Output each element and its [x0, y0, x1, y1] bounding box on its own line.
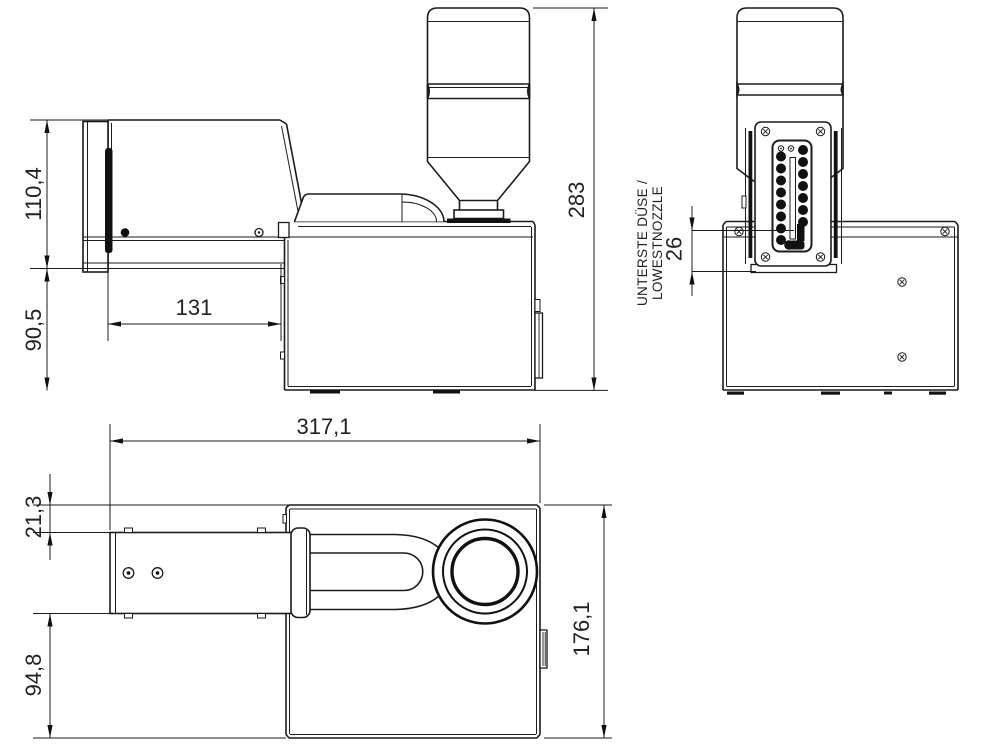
- body-right-tab: [535, 300, 540, 312]
- rail-screw-left: [735, 227, 743, 235]
- top-body-clip: [283, 515, 287, 524]
- dim-text-body-width: 176,1: [569, 601, 594, 656]
- technical-drawing-page: 110,4 90,5 131 283: [0, 0, 1000, 750]
- dim-text-total-length: 317,1: [296, 414, 351, 439]
- rail-clip: [279, 223, 290, 238]
- nozzle-field-screw-2: [788, 146, 793, 151]
- dim-text-lower-height: 90,5: [21, 309, 46, 352]
- side-view-structure: [30, 8, 543, 394]
- dim-text-total-height: 283: [564, 182, 589, 219]
- dim-text-body-depth: 94,8: [21, 654, 46, 697]
- arm-tab-top-2: [258, 528, 266, 533]
- top-arm: [110, 533, 293, 614]
- plate-screw-tr: [816, 127, 824, 135]
- channel-bar-right: [834, 131, 838, 258]
- tube-outer-top: [310, 535, 439, 549]
- channel-bar-left: [749, 131, 753, 258]
- top-body-latch: [540, 630, 547, 668]
- top-view: 317,1 21,3 94,8 176,1: [21, 414, 612, 738]
- front-bottle-waist-right: [841, 84, 843, 95]
- front-view: 26 UNTERSTE DÜSE / LOWESTNOZZLE: [635, 8, 958, 395]
- nozzle-divider-slot: [790, 158, 796, 240]
- arm-screw-1: [123, 568, 134, 579]
- face-screw-lower: [898, 353, 906, 361]
- top-view-structure: [110, 505, 547, 738]
- front-foot-1: [727, 392, 744, 395]
- dim-text-upper-height: 110,4: [21, 167, 46, 220]
- front-foot-2: [821, 392, 840, 395]
- bottle-waist-right: [528, 84, 530, 99]
- dim-text-arm-offset: 21,3: [21, 496, 46, 539]
- label-lowest-nozzle-line1: UNTERSTE DÜSE /: [635, 180, 650, 306]
- arm-end-plate: [83, 122, 108, 273]
- screw-solid: [121, 228, 130, 237]
- plate-screw-br: [816, 253, 824, 261]
- arm-tab-top-1: [125, 528, 133, 533]
- bottle-top-rings: [433, 520, 537, 624]
- plate-screw-tl: [761, 127, 769, 135]
- foot-2: [433, 390, 460, 393]
- arm-tab-bottom-1: [125, 614, 133, 619]
- channel-clip: [742, 196, 746, 208]
- rail-screw-right: [941, 227, 949, 235]
- label-lowest-nozzle-line2: LOWESTNOZZLE: [650, 186, 665, 300]
- front-bottle-waist-left: [737, 84, 739, 95]
- arm-screw-2: [152, 568, 163, 579]
- foot-1: [310, 390, 340, 393]
- arm-collar: [291, 528, 310, 618]
- front-view-structure: [723, 8, 958, 395]
- side-view: 110,4 90,5 131 283: [21, 8, 608, 394]
- bottle-cap: [454, 210, 504, 219]
- arm-tab-bottom-2: [258, 614, 266, 619]
- technical-drawing: 110,4 90,5 131 283: [0, 0, 1000, 750]
- bottle-outline: [428, 8, 530, 201]
- handle-outline: [295, 194, 445, 222]
- plate-screw-bl: [761, 253, 769, 261]
- bottle-seat: [447, 219, 511, 224]
- front-foot-4: [929, 392, 946, 395]
- bottle-waist-left: [428, 84, 430, 99]
- topbox-slant-inner: [282, 126, 300, 219]
- front-foot-3: [884, 392, 892, 395]
- tube-fork: [310, 553, 423, 591]
- dim-text-lowest-nozzle: 26: [661, 237, 686, 261]
- body-left-tab-2: [281, 352, 285, 359]
- tube-outer-bottom: [310, 596, 439, 610]
- dim-text-arm-length: 131: [176, 295, 213, 320]
- face-screw-upper: [898, 278, 906, 286]
- nozzle-field-screw-1: [778, 146, 783, 151]
